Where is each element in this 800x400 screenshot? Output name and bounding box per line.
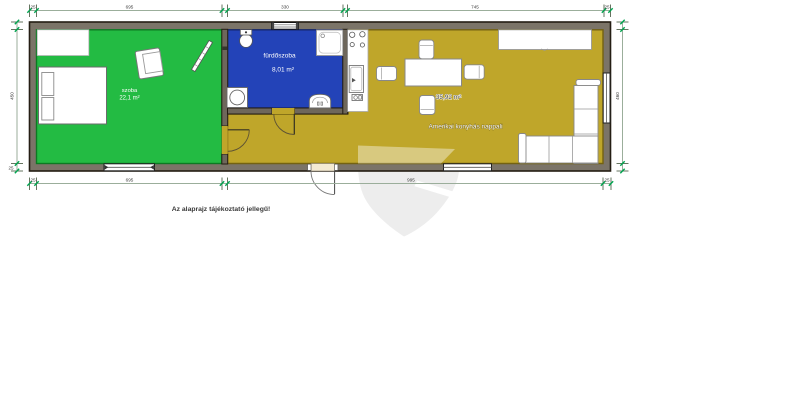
svg-text:25: 25	[30, 4, 36, 9]
svg-text:Amerikai konyhás nappali: Amerikai konyhás nappali	[428, 124, 502, 131]
svg-text:330: 330	[281, 4, 289, 9]
svg-text:szoba: szoba	[122, 88, 138, 94]
svg-text:Az alaprajz tájékoztató jelleg: Az alaprajz tájékoztató jellegű!	[172, 206, 271, 213]
svg-text:8,01 m²: 8,01 m²	[272, 66, 295, 73]
svg-text:695: 695	[126, 4, 134, 9]
svg-text:450: 450	[10, 92, 15, 100]
svg-text:fürdőszoba: fürdőszoba	[263, 53, 296, 60]
svg-text:995: 995	[407, 177, 415, 182]
svg-text:460: 460	[615, 92, 620, 100]
svg-text:25: 25	[30, 177, 36, 182]
svg-text:695: 695	[126, 177, 134, 182]
svg-text:35,92 m²: 35,92 m²	[436, 94, 461, 101]
svg-text:25: 25	[604, 4, 610, 9]
svg-text:22,1 m²: 22,1 m²	[119, 95, 139, 101]
svg-text:25: 25	[604, 177, 610, 182]
svg-text:745: 745	[471, 4, 479, 9]
svg-text:25: 25	[8, 166, 14, 171]
